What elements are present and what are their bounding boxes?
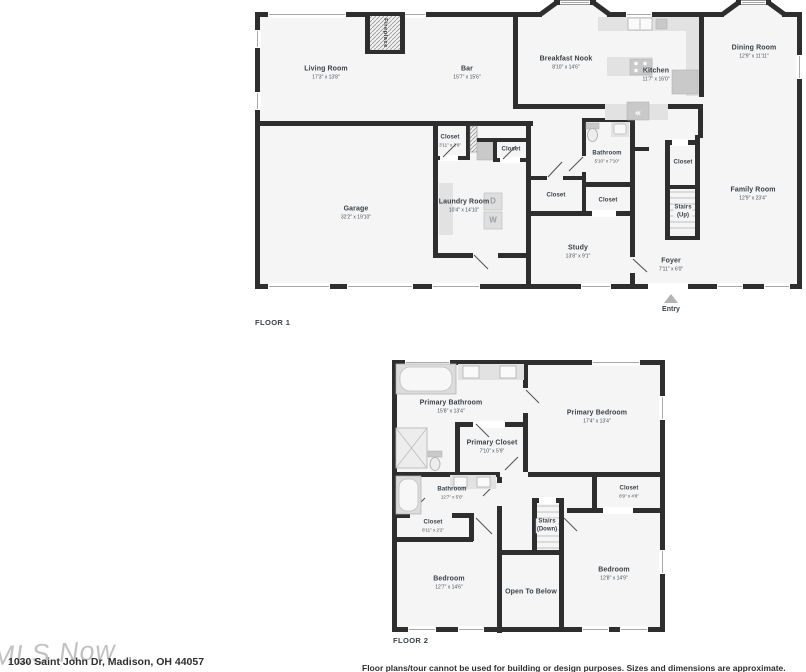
room-label-closet-bedroom-f2: Closet 8'9" x 4'8" [619,485,639,498]
room-label-study: Study 13'8" x 9'1" [566,244,591,259]
room-label-primary-closet: Primary Closet 7'10" x 5'9" [467,439,518,454]
property-address: 1030 Saint John Dr, Madison, OH 44057 [8,656,204,668]
fridge-icon: « [635,108,641,119]
room-label-closet-small: Closet [502,146,521,154]
dryer-letter: D [490,197,496,206]
room-label-dining-room: Dining Room 12'9" x 11'11" [732,44,777,59]
room-label-foyer: Foyer 7'11" x 6'0" [659,257,683,272]
room-label-bedroom-right: Bedroom 12'8" x 14'9" [598,566,629,581]
room-name: Living Room [304,65,348,74]
toilet-bowl-icon [588,129,598,142]
room-label-primary-bedroom: Primary Bedroom 17'4" x 13'4" [567,409,627,424]
room-label-closet-hall: Closet 3'11" x 2'8" [439,134,461,147]
room-label-bathroom-f1: Bathroom 5'10" x 7'10" [592,150,621,163]
room-label-garage: Garage 32'2" x 19'10" [341,205,371,220]
room-label-bathroom-f2: Bathroom 12'7" x 5'0" [437,486,466,499]
room-label-closet-hallway: Closet [547,192,566,200]
floor2-tag: FLOOR 2 [393,636,428,645]
room-label-closet-hall-f2: Closet 8'11" x 2'2" [422,519,444,532]
bathtub-icon-2 [399,479,418,511]
floorplan-drawing: « [0,0,806,672]
bathtub-icon [400,367,452,391]
room-label-stairs-down: Stairs (Down) [536,518,558,533]
vanity-sink-icon-2 [500,366,516,378]
bathroom-sink-icon [614,124,626,134]
room-label-open-to-below: Open To Below [505,589,557,598]
room-label-bedroom-left: Bedroom 12'7" x 14'6" [433,575,464,590]
vanity-sink-icon [463,366,479,378]
room-label-family-room: Family Room 12'9" x 23'4" [730,186,775,201]
floor1-tag: FLOOR 1 [255,318,290,327]
entry-label: Entry [662,306,680,313]
floor1-plan: « [254,0,803,303]
room-dims: 17'3" x 13'8" [304,74,348,81]
fireplace-label: Fireplace [382,18,388,48]
room-label-kitchen: Kitchen 11'7" x 16'0" [642,67,669,82]
room-label-closet-study: Closet [599,197,618,205]
disclaimer-text: Floor plans/tour cannot be used for buil… [362,663,786,672]
room-label-living-room: Living Room 17'3" x 13'8" [304,65,348,80]
refrigerator-icon [672,70,698,94]
room-label-closet-stairs: Closet [674,159,693,167]
room-label-primary-bathroom: Primary Bathroom 15'8" x 13'4" [420,399,483,414]
room-label-stairs-up: Stairs (Up) [673,204,692,219]
room-label-bar: Bar 15'7" x 15'6" [453,65,480,80]
room-label-breakfast-nook: Breakfast Nook 8'10" x 14'6" [540,55,593,70]
toilet-bowl-icon-2 [430,458,440,471]
washer-letter: W [489,216,497,225]
floorplan-canvas: « [0,0,806,672]
sink-icon-4 [477,477,490,487]
room-label-laundry-room: Laundry Room 10'4" x 14'10" [439,198,490,213]
toilet-tank-icon-2 [428,451,442,457]
entry-arrow-icon [664,294,678,303]
